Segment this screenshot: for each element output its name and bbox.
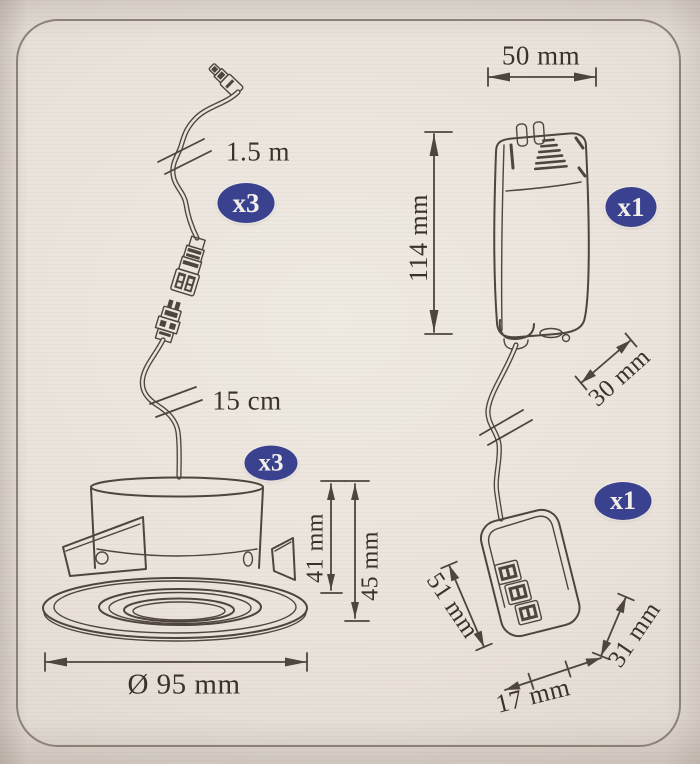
spring-clip-right	[272, 538, 295, 580]
terminal-block-drawing	[477, 506, 583, 640]
spot-quantity-badge: x3	[245, 446, 298, 481]
inline-connector-male	[153, 298, 186, 344]
inline-connector-female	[170, 235, 210, 297]
driver-width-label: 50 mm	[502, 41, 580, 72]
driver-drawing	[480, 122, 589, 519]
terminal-socket	[494, 560, 521, 585]
cable-quantity-badge: x3	[218, 183, 275, 223]
spring-clip-left	[63, 517, 146, 576]
driver-quantity-badge: x1	[606, 187, 657, 227]
spot-diameter-label: Ø 95 mm	[127, 669, 240, 702]
terminal-socket	[505, 580, 532, 605]
vent-slots	[531, 137, 567, 170]
spot-cable-length-label: 15 cm	[212, 386, 281, 417]
spot-recess-height-label: 41 mm	[303, 513, 330, 583]
packaging-diagram-card: 1.5 m 15 cm 50 mm 114 mm 30 mm 41 mm 45 …	[0, 0, 700, 764]
connector-quantity-badge: x1	[595, 482, 652, 520]
cable-break-lower	[150, 387, 202, 417]
driver-height-label: 114 mm	[404, 194, 434, 282]
cable-length-label: 1.5 m	[226, 137, 290, 168]
terminal-socket	[515, 600, 542, 625]
cable-break-upper	[158, 139, 211, 174]
spot-total-height-label: 45 mm	[358, 531, 385, 601]
spotlight-drawing	[43, 478, 307, 642]
